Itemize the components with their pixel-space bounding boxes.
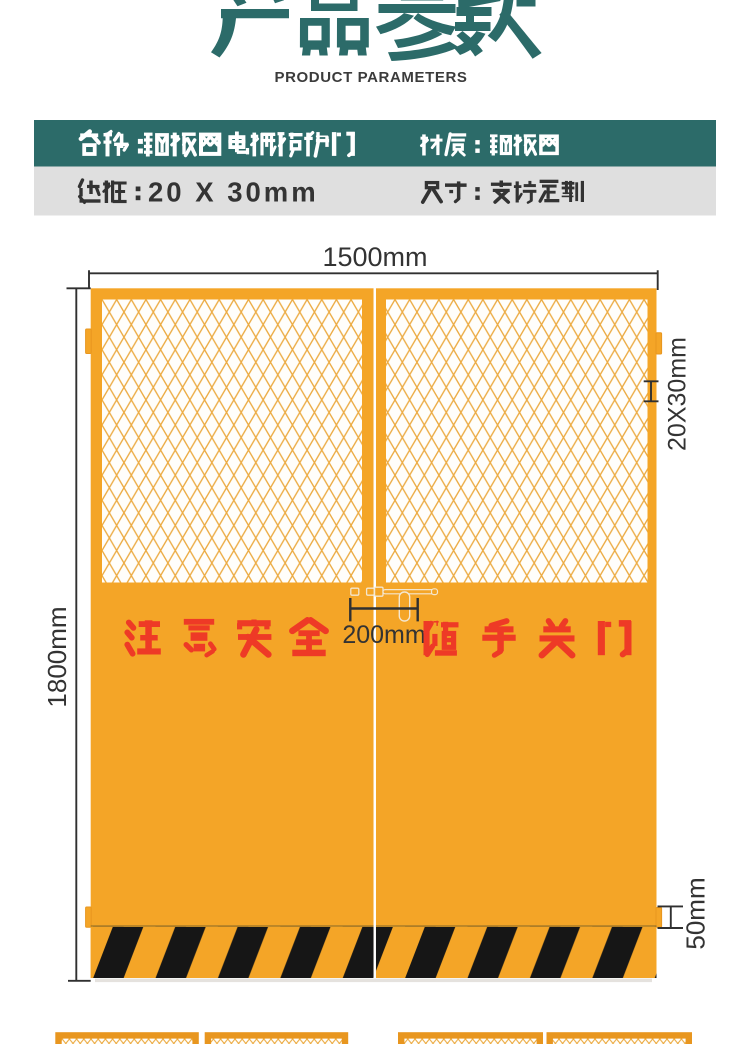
svg-text:50mm: 50mm — [681, 877, 711, 949]
svg-text:20X30mm: 20X30mm — [664, 337, 692, 451]
svg-text:20 X 30mm: 20 X 30mm — [148, 177, 319, 208]
svg-text:1500mm: 1500mm — [322, 242, 427, 272]
svg-text:PRODUCT PARAMETERS: PRODUCT PARAMETERS — [274, 69, 467, 86]
svg-text:200mm: 200mm — [342, 621, 425, 649]
svg-text:1800mm: 1800mm — [42, 606, 72, 707]
